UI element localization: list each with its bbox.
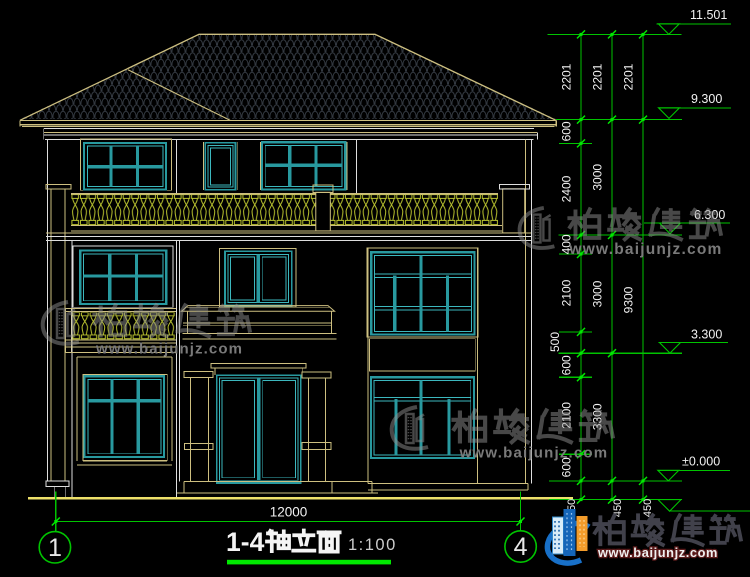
svg-text:3000: 3000	[591, 164, 605, 191]
svg-text:1-4: 1-4	[226, 527, 265, 557]
svg-text:11.501: 11.501	[690, 8, 727, 22]
svg-text:1:100: 1:100	[348, 536, 397, 554]
svg-text:600: 600	[560, 355, 574, 375]
svg-text:1: 1	[48, 534, 62, 562]
svg-text:www.baijunjz.com: www.baijunjz.com	[569, 241, 723, 258]
svg-text:3.300: 3.300	[691, 328, 722, 342]
svg-text:9300: 9300	[622, 286, 636, 313]
svg-text:www.baijunjz.com: www.baijunjz.com	[459, 445, 609, 462]
svg-text:www.baijunjz.com: www.baijunjz.com	[95, 341, 243, 358]
svg-text:600: 600	[560, 121, 574, 141]
svg-text:2201: 2201	[622, 63, 636, 90]
svg-text:±0.000: ±0.000	[682, 455, 720, 469]
svg-text:3000: 3000	[591, 280, 605, 307]
svg-text:12000: 12000	[270, 505, 308, 520]
svg-text:2201: 2201	[560, 63, 574, 90]
svg-text:9.300: 9.300	[691, 92, 722, 106]
svg-text:4: 4	[514, 533, 528, 561]
svg-text:2201: 2201	[591, 63, 605, 90]
svg-text:2400: 2400	[560, 175, 574, 202]
svg-text:500: 500	[548, 332, 562, 352]
svg-text:www.baijunjz.com: www.baijunjz.com	[597, 545, 718, 560]
svg-text:2100: 2100	[560, 279, 574, 306]
